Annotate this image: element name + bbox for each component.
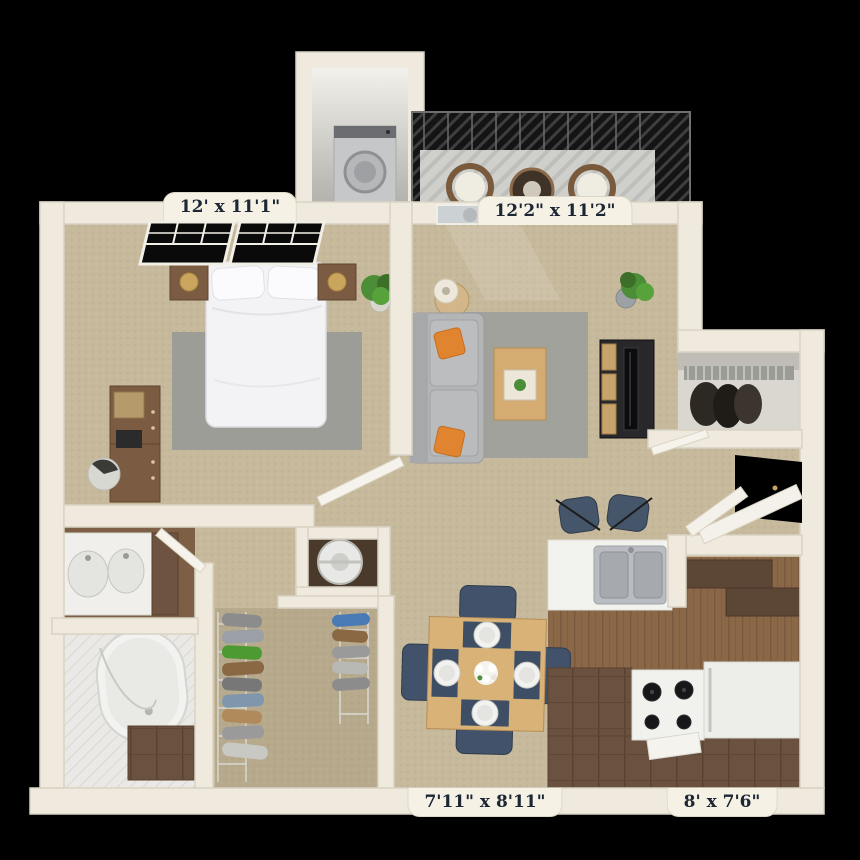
- basket: [114, 392, 144, 418]
- refrigerator: [704, 662, 800, 738]
- door-knob: [773, 486, 778, 491]
- wall-left: [40, 202, 64, 788]
- bath-bench: [128, 726, 194, 780]
- dresser: [110, 386, 160, 502]
- wall-heater-closet: [378, 527, 390, 599]
- living-room-dimensions-label: 12'2" x 11'2": [477, 196, 632, 225]
- table-lamp: [328, 273, 346, 291]
- throw-pillow: [433, 327, 466, 360]
- floorplan-render: [0, 0, 860, 860]
- hanging-coats: [690, 382, 762, 428]
- coat-closet: [678, 352, 800, 430]
- wall-bathroom-mid: [52, 618, 198, 634]
- double-vanity: [62, 533, 152, 615]
- kitchen-counter: [548, 668, 632, 738]
- breakfast-bar: [548, 540, 672, 610]
- nightstand: [170, 264, 208, 300]
- faucet: [628, 547, 634, 553]
- kitchen-dimensions-label: 8' x 7'6": [667, 788, 778, 817]
- wall-kitchen-divider: [668, 535, 802, 555]
- pillow: [211, 265, 265, 301]
- coffee-table: [494, 348, 546, 420]
- wire-shelf: [684, 366, 794, 380]
- floorplan-canvas: 12' x 11'1" 12'2" x 11'2" 7'11" x 8'11" …: [0, 0, 860, 860]
- upper-cabinets: [680, 560, 772, 588]
- wall-closet-right: [378, 596, 394, 788]
- washer-dryer: [334, 126, 396, 212]
- wall-bathroom-right: [195, 563, 213, 788]
- hanging-clothes: [332, 613, 371, 692]
- wall-kitchen-divider: [668, 535, 686, 607]
- wall-bedroom-bottom: [64, 505, 314, 527]
- bedroom-dimensions-label: 12' x 11'1": [163, 192, 297, 221]
- laundry-hamper: [88, 458, 120, 490]
- table-lamp: [180, 273, 198, 291]
- storage-box: [116, 430, 142, 448]
- wall-bedroom-divider: [390, 202, 412, 455]
- wall-heater-closet: [296, 527, 390, 539]
- laundry-closet: [296, 52, 424, 212]
- sofa: [410, 313, 484, 463]
- tv-stand: [600, 340, 654, 438]
- bed: [206, 262, 326, 427]
- small-plant: [514, 379, 526, 391]
- throw-pillow: [433, 426, 465, 458]
- upper-cabinets: [726, 588, 802, 616]
- wall-closet-top: [278, 596, 394, 608]
- water-heater-closet: [308, 539, 378, 587]
- pillow: [267, 266, 321, 301]
- dining-dimensions-label: 7'11" x 8'11": [407, 788, 562, 817]
- wall-wing-right: [800, 330, 824, 788]
- nightstand: [318, 264, 356, 300]
